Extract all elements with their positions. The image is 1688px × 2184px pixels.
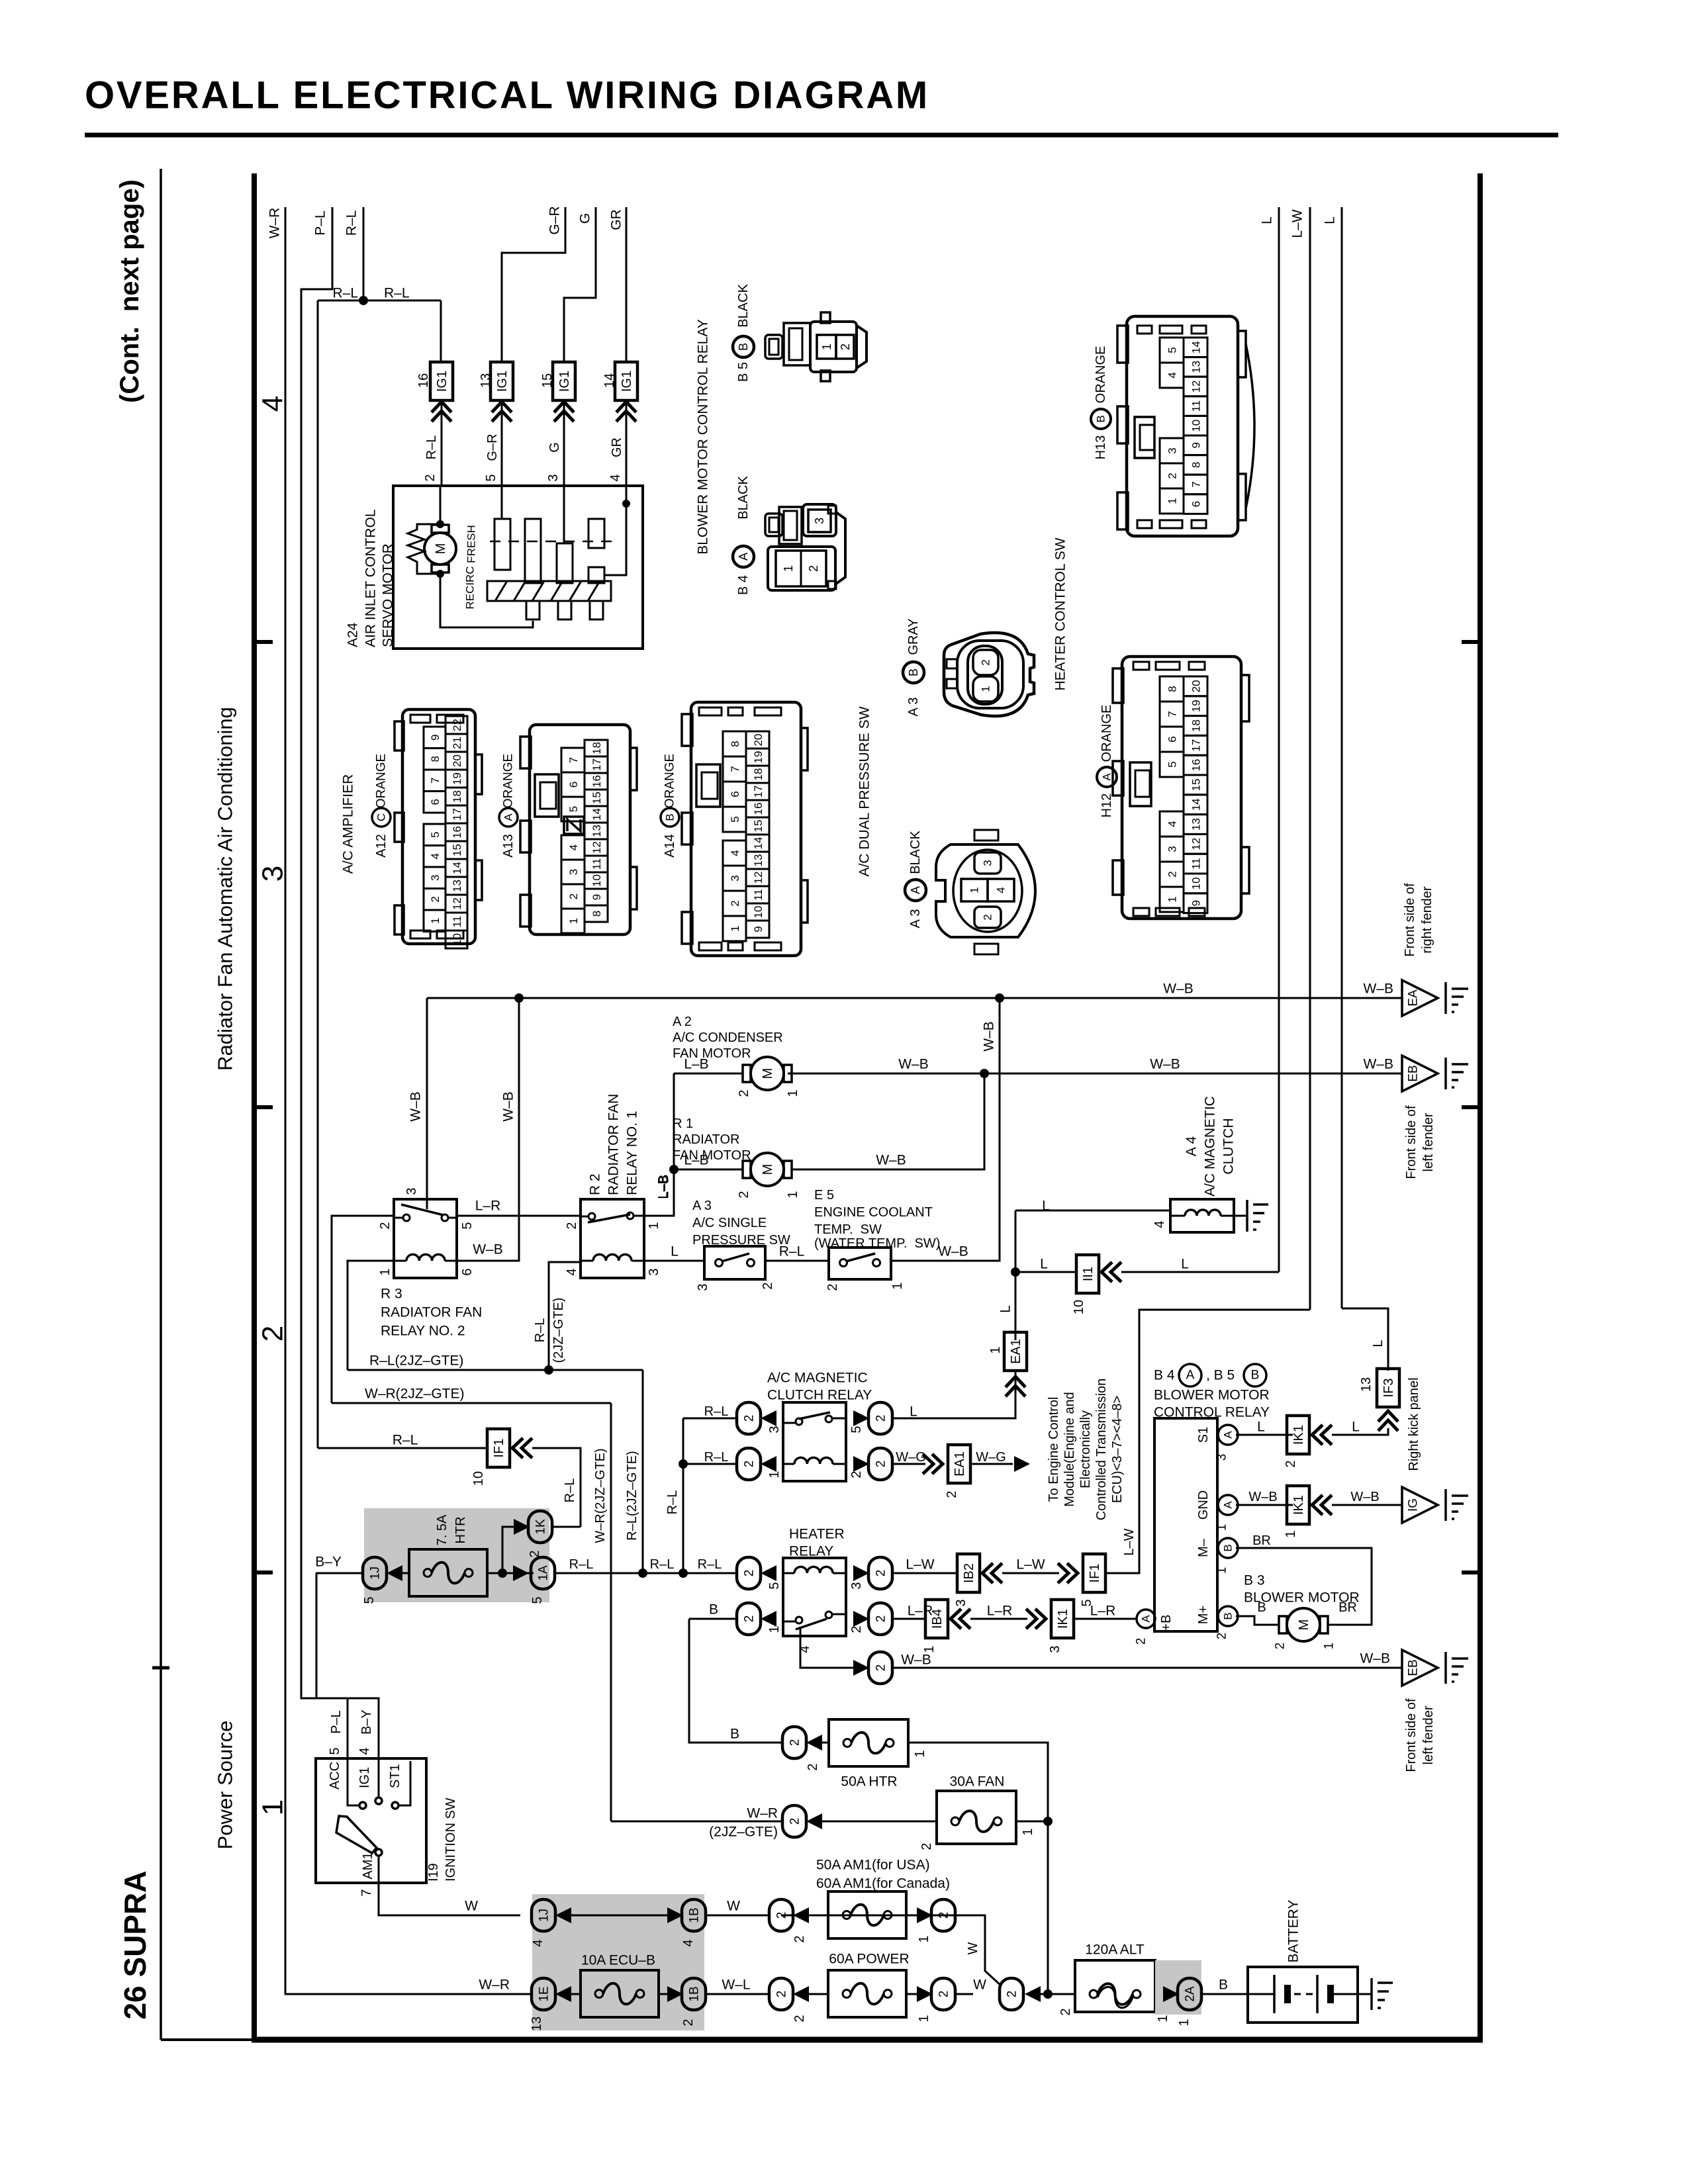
svg-text:RELAY NO. 1: RELAY NO. 1 [625, 1111, 640, 1195]
svg-text:M–: M– [1196, 1538, 1211, 1557]
svg-text:11: 11 [451, 916, 463, 928]
svg-text:A/C MAGNETIC: A/C MAGNETIC [767, 1371, 868, 1386]
svg-text:5: 5 [328, 1747, 342, 1754]
svg-text:1J: 1J [538, 1909, 551, 1922]
svg-text:12: 12 [590, 841, 603, 854]
svg-text:1E: 1E [538, 1986, 551, 2001]
svg-text:14: 14 [1190, 798, 1203, 811]
svg-text:W–B: W–B [1363, 981, 1393, 997]
svg-text:R–L(2JZ–GTE): R–L(2JZ–GTE) [369, 1353, 463, 1369]
svg-text:W: W [966, 1942, 980, 1954]
svg-text:2: 2 [874, 1415, 888, 1422]
svg-text:I19: I19 [426, 1863, 441, 1882]
svg-text:E 5: E 5 [814, 1188, 834, 1203]
svg-text:19: 19 [451, 772, 463, 785]
svg-text:A/C AMPLIFIER: A/C AMPLIFIER [341, 774, 356, 874]
svg-text:EA1: EA1 [1009, 1339, 1023, 1364]
svg-text:CLUTCH RELAY: CLUTCH RELAY [767, 1388, 872, 1403]
svg-text:2: 2 [945, 1490, 959, 1498]
svg-text:1: 1 [1215, 1567, 1229, 1574]
svg-text:ORANGE: ORANGE [663, 754, 677, 808]
svg-text:7: 7 [567, 757, 580, 763]
svg-text:3: 3 [954, 1599, 968, 1606]
svg-text:W–B: W–B [1360, 1651, 1390, 1666]
svg-text:2: 2 [429, 896, 442, 902]
svg-text:ACC: ACC [328, 1762, 342, 1790]
svg-text:50A HTR: 50A HTR [841, 1774, 897, 1790]
svg-text:W–B: W–B [473, 1242, 503, 1257]
svg-text:60A POWER: 60A POWER [829, 1952, 909, 1967]
svg-text:B–Y: B–Y [359, 1709, 374, 1735]
svg-text:2: 2 [792, 1935, 807, 1942]
svg-text:15: 15 [451, 844, 463, 856]
svg-text:IK1: IK1 [1291, 1495, 1306, 1515]
svg-text:18: 18 [1190, 719, 1203, 732]
svg-text:1K: 1K [534, 1519, 548, 1535]
svg-text:1: 1 [1177, 2019, 1192, 2026]
svg-text:1: 1 [782, 565, 795, 572]
svg-text:L: L [1371, 1340, 1385, 1347]
svg-text:A13: A13 [501, 834, 516, 858]
svg-text:Module(Engine and: Module(Engine and [1062, 1392, 1077, 1506]
svg-text:1: 1 [1323, 1643, 1336, 1650]
svg-text:16: 16 [416, 373, 431, 388]
svg-text:RELAY NO. 2: RELAY NO. 2 [381, 1324, 465, 1339]
svg-text:6: 6 [729, 791, 741, 797]
svg-text:BLOWER MOTOR CONTROL RELAY: BLOWER MOTOR CONTROL RELAY [696, 319, 711, 555]
svg-text:13: 13 [1359, 1377, 1374, 1392]
svg-text:7. 5A: 7. 5A [435, 1514, 449, 1545]
svg-text:10: 10 [451, 933, 463, 946]
svg-text:Front side of: Front side of [1404, 1698, 1419, 1772]
svg-text:W–B: W–B [1163, 981, 1194, 997]
svg-text:2: 2 [567, 893, 580, 899]
svg-text:4: 4 [1166, 372, 1179, 378]
svg-text:A12: A12 [374, 834, 389, 858]
svg-text:W–R: W–R [267, 208, 283, 239]
svg-text:2: 2 [849, 1625, 864, 1633]
svg-text:16: 16 [590, 775, 603, 788]
svg-text:12: 12 [752, 872, 765, 884]
svg-text:1: 1 [257, 1799, 289, 1815]
svg-text:A: A [909, 886, 922, 894]
svg-text:6: 6 [1166, 736, 1179, 742]
svg-text:L: L [1181, 1257, 1189, 1272]
svg-text:120A ALT: 120A ALT [1085, 1942, 1145, 1958]
svg-text:ST1: ST1 [388, 1764, 402, 1788]
svg-text:A: A [1222, 1431, 1235, 1439]
svg-text:1: 1 [917, 1935, 931, 1942]
svg-text:W–B: W–B [1363, 1057, 1393, 1072]
svg-text:GR: GR [609, 209, 624, 230]
svg-text:W–R(2JZ–GTE): W–R(2JZ–GTE) [593, 1448, 608, 1543]
svg-text:A: A [502, 813, 515, 821]
svg-text:IGNITION SW: IGNITION SW [444, 1797, 458, 1882]
svg-text:IG1: IG1 [435, 371, 449, 392]
svg-text:W–L: W–L [722, 1978, 750, 1993]
svg-text:M: M [1297, 1619, 1311, 1631]
svg-text:W–B: W–B [1248, 1490, 1277, 1504]
svg-text:1: 1 [786, 1089, 800, 1097]
svg-text:7: 7 [429, 778, 442, 784]
svg-text:2: 2 [775, 1991, 789, 1998]
svg-text:17: 17 [451, 808, 463, 821]
svg-text:R–L(2JZ–GTE): R–L(2JZ–GTE) [625, 1451, 639, 1541]
svg-text:2: 2 [743, 1615, 757, 1623]
svg-text:1A: 1A [537, 1565, 551, 1581]
svg-text:2: 2 [378, 1222, 393, 1229]
svg-text:AIR INLET CONTROL: AIR INLET CONTROL [363, 510, 379, 647]
svg-text:15: 15 [590, 792, 603, 804]
svg-text:W–B: W–B [982, 1021, 997, 1052]
svg-text:10: 10 [1190, 877, 1203, 889]
svg-text:3: 3 [546, 474, 561, 481]
svg-text:R–L: R–L [698, 1557, 722, 1572]
svg-text:B 4: B 4 [1154, 1368, 1175, 1383]
svg-text:1: 1 [988, 1346, 1003, 1353]
svg-text:right fender: right fender [1420, 886, 1434, 954]
svg-text:2: 2 [423, 474, 438, 481]
svg-text:W–G: W–G [896, 1450, 926, 1465]
svg-text:13: 13 [590, 825, 603, 837]
svg-text:2: 2 [849, 1471, 864, 1478]
svg-text:M: M [761, 1164, 775, 1175]
svg-text:BLOWER MOTOR: BLOWER MOTOR [1154, 1388, 1270, 1403]
svg-text:22: 22 [451, 719, 463, 731]
svg-text:R–L: R–L [533, 1318, 547, 1343]
svg-text:L: L [910, 1404, 917, 1420]
svg-text:13: 13 [451, 880, 463, 892]
svg-text:G–R: G–R [485, 433, 500, 461]
svg-text:2: 2 [937, 1912, 951, 1919]
svg-text:1J: 1J [369, 1567, 383, 1580]
svg-text:L–R: L–R [908, 1604, 933, 1619]
svg-text:4: 4 [608, 474, 623, 481]
svg-text:5: 5 [460, 1222, 475, 1229]
svg-text:4: 4 [257, 396, 289, 412]
svg-text:A: A [1140, 1615, 1152, 1623]
svg-text:L–R: L–R [987, 1604, 1013, 1619]
svg-text:5: 5 [729, 816, 741, 822]
svg-text:2: 2 [874, 1615, 888, 1623]
svg-text:2: 2 [788, 1739, 802, 1747]
svg-text:L–W: L–W [1122, 1528, 1137, 1555]
svg-text:13: 13 [752, 854, 765, 867]
svg-text:8: 8 [729, 741, 741, 747]
svg-text:C: C [375, 813, 388, 821]
svg-text:26 SUPRA: 26 SUPRA [118, 1871, 152, 2020]
svg-text:IB4: IB4 [930, 1609, 945, 1629]
svg-text:To Engine Control: To Engine Control [1047, 1397, 1061, 1502]
svg-text:20: 20 [1190, 680, 1203, 692]
svg-text:2: 2 [1284, 1460, 1298, 1467]
svg-text:W–B: W–B [501, 1091, 516, 1122]
svg-text:5: 5 [530, 1596, 545, 1604]
svg-text:W: W [465, 1899, 478, 1914]
svg-text:2: 2 [806, 1763, 820, 1770]
svg-text:L–B: L–B [684, 1057, 708, 1072]
svg-text:OVERALL ELECTRICAL WIRING DIAG: OVERALL ELECTRICAL WIRING DIAGRAM [85, 74, 929, 117]
svg-text:8: 8 [590, 911, 603, 917]
svg-text:3: 3 [1166, 447, 1179, 453]
svg-text:6: 6 [429, 799, 442, 805]
svg-text:5: 5 [567, 806, 580, 812]
svg-text:60A AM1(for Canada): 60A AM1(for Canada) [816, 1876, 950, 1891]
svg-text:P–L: P–L [313, 210, 328, 235]
svg-text:L: L [1323, 216, 1338, 224]
svg-text:1: 1 [767, 1625, 782, 1633]
svg-text:left fender: left fender [1421, 1113, 1436, 1171]
svg-text:2: 2 [1058, 2008, 1073, 2015]
svg-text:2: 2 [874, 1461, 888, 1468]
svg-text:R–L: R–L [384, 286, 410, 301]
svg-text:(2JZ–GTE): (2JZ–GTE) [709, 1825, 778, 1840]
svg-text:2: 2 [792, 2015, 807, 2022]
svg-text:ENGINE COOLANT: ENGINE COOLANT [814, 1205, 933, 1220]
svg-text:G: G [547, 442, 562, 453]
svg-text:2: 2 [761, 1282, 775, 1289]
svg-text:L: L [998, 1305, 1013, 1313]
svg-text:L–W: L–W [906, 1557, 934, 1572]
svg-text:Electronically: Electronically [1078, 1410, 1093, 1488]
svg-text:(Cont. next page): (Cont. next page) [115, 179, 144, 403]
svg-text:B: B [709, 1602, 718, 1617]
svg-text:ECU)<3–7><4–8>: ECU)<3–7><4–8> [1110, 1396, 1125, 1503]
svg-text:2: 2 [874, 1664, 888, 1672]
svg-text:IK1: IK1 [1291, 1425, 1306, 1445]
svg-text:A 3: A 3 [692, 1199, 712, 1213]
svg-text:FRESH: FRESH [465, 525, 478, 563]
svg-text:2: 2 [788, 1818, 802, 1825]
svg-text:1B: 1B [688, 1907, 702, 1923]
svg-text:3: 3 [813, 518, 826, 524]
svg-text:1: 1 [429, 918, 442, 924]
svg-text:R–L: R–L [393, 1433, 418, 1448]
svg-text:L: L [1040, 1257, 1048, 1272]
svg-text:2: 2 [839, 343, 852, 350]
svg-text:1: 1 [917, 2015, 931, 2022]
svg-text:1: 1 [820, 343, 833, 350]
svg-text:2: 2 [1135, 1638, 1149, 1645]
svg-text:IG: IG [1407, 1498, 1421, 1512]
svg-text:A 3: A 3 [906, 698, 921, 717]
svg-text:B: B [737, 343, 750, 351]
svg-text:W–R(2JZ–GTE): W–R(2JZ–GTE) [365, 1387, 465, 1402]
svg-text:A 2: A 2 [673, 1015, 692, 1029]
svg-text:10: 10 [471, 1471, 486, 1486]
svg-text:20: 20 [752, 734, 765, 747]
svg-text:8: 8 [429, 756, 442, 762]
svg-text:W–B: W–B [901, 1653, 931, 1668]
svg-text:18: 18 [451, 790, 463, 803]
svg-text:B: B [1219, 1978, 1228, 1993]
svg-text:3: 3 [982, 860, 994, 866]
svg-text:1B: 1B [688, 1986, 702, 2001]
svg-text:2: 2 [807, 565, 820, 572]
svg-text:5: 5 [484, 474, 498, 481]
svg-text:16: 16 [1190, 759, 1203, 772]
svg-text:2: 2 [1274, 1643, 1288, 1650]
svg-text:ORANGE: ORANGE [502, 754, 516, 808]
svg-text:BLACK: BLACK [736, 476, 751, 520]
svg-text:2: 2 [825, 1283, 840, 1291]
svg-text:4: 4 [567, 844, 580, 850]
svg-text:A: A [737, 553, 750, 561]
svg-text:7: 7 [1166, 711, 1179, 717]
svg-text:3: 3 [696, 1283, 710, 1291]
svg-text:13: 13 [1190, 818, 1203, 831]
svg-text:21: 21 [451, 737, 463, 749]
svg-text:R–L: R–L [332, 286, 358, 301]
svg-text:A14: A14 [663, 834, 677, 858]
svg-text:ORANGE: ORANGE [1100, 705, 1114, 762]
svg-text:W–B: W–B [938, 1244, 968, 1259]
svg-text:A/C MAGNETIC: A/C MAGNETIC [1203, 1096, 1218, 1197]
svg-text:11: 11 [752, 889, 765, 901]
svg-text:3: 3 [1215, 1454, 1229, 1461]
svg-text:ORANGE: ORANGE [1094, 346, 1108, 404]
svg-text:3: 3 [729, 875, 741, 881]
svg-text:4: 4 [531, 1939, 545, 1946]
svg-text:14: 14 [1190, 341, 1203, 353]
svg-text:, B 5: , B 5 [1206, 1368, 1235, 1383]
svg-text:R 2: R 2 [588, 1173, 603, 1195]
svg-text:9: 9 [752, 926, 765, 932]
svg-text:Front side of: Front side of [1404, 1105, 1419, 1179]
svg-text:2: 2 [919, 1843, 934, 1850]
svg-text:1: 1 [890, 1282, 905, 1289]
svg-text:IF1: IF1 [1088, 1564, 1102, 1583]
svg-text:L–R: L–R [1090, 1604, 1116, 1619]
svg-text:2: 2 [1215, 1633, 1229, 1640]
svg-text:14: 14 [451, 862, 463, 874]
svg-text:1: 1 [968, 887, 981, 893]
svg-text:GND: GND [1196, 1490, 1211, 1520]
svg-text:H12: H12 [1100, 794, 1114, 818]
svg-text:1: 1 [378, 1268, 393, 1275]
svg-text:4: 4 [681, 1939, 696, 1946]
svg-text:8: 8 [1166, 686, 1179, 692]
svg-text:W: W [973, 1978, 986, 1993]
svg-text:G–R: G–R [547, 206, 563, 234]
svg-text:1: 1 [1215, 1524, 1229, 1531]
svg-text:6: 6 [1190, 501, 1203, 507]
svg-text:7: 7 [359, 1889, 374, 1896]
svg-text:6: 6 [460, 1268, 475, 1275]
svg-text:6: 6 [567, 782, 580, 788]
svg-text:3: 3 [404, 1187, 419, 1195]
svg-text:A: A [1101, 773, 1113, 781]
svg-text:Front side of: Front side of [1403, 883, 1417, 957]
svg-text:3: 3 [849, 1582, 864, 1589]
svg-text:L: L [671, 1244, 679, 1259]
svg-text:3: 3 [647, 1268, 661, 1275]
svg-text:W–R: W–R [747, 1806, 778, 1821]
svg-text:13: 13 [1190, 361, 1203, 373]
svg-text:3: 3 [567, 869, 580, 875]
svg-text:HEATER: HEATER [789, 1527, 845, 1542]
svg-text:8: 8 [1190, 462, 1203, 468]
svg-text:1: 1 [922, 1645, 937, 1653]
svg-text:Power Source: Power Source [214, 1721, 237, 1850]
svg-text:7: 7 [729, 766, 741, 772]
svg-text:30A FAN: 30A FAN [950, 1774, 1005, 1790]
svg-text:A/C DUAL PRESSURE SW: A/C DUAL PRESSURE SW [857, 706, 872, 876]
svg-text:17: 17 [752, 786, 765, 798]
svg-text:W–B: W–B [898, 1057, 929, 1072]
svg-text:L–R: L–R [475, 1199, 501, 1214]
svg-text:A: A [1186, 1369, 1195, 1383]
svg-text:B: B [1222, 1612, 1235, 1619]
svg-text:BATTERY: BATTERY [1286, 1900, 1301, 1963]
svg-text:14: 14 [590, 808, 603, 821]
svg-text:11: 11 [1190, 858, 1203, 870]
svg-text:EB: EB [1407, 1659, 1421, 1676]
svg-text:B: B [907, 668, 920, 676]
svg-text:GRAY: GRAY [906, 618, 921, 655]
svg-text:L: L [1260, 216, 1275, 224]
svg-text:1: 1 [1156, 2015, 1170, 2022]
svg-text:2: 2 [737, 1089, 751, 1097]
svg-text:R–L: R–L [665, 1490, 680, 1515]
svg-text:ORANGE: ORANGE [375, 754, 389, 808]
svg-text:A: A [1222, 1501, 1235, 1509]
svg-text:4: 4 [357, 1747, 372, 1754]
svg-text:20: 20 [451, 754, 463, 767]
svg-text:11: 11 [590, 858, 603, 870]
svg-text:R–L: R–L [569, 1557, 594, 1572]
svg-text:2: 2 [681, 2019, 696, 2026]
svg-text:10: 10 [590, 874, 603, 887]
svg-text:left fender: left fender [1421, 1706, 1436, 1764]
svg-text:W–R: W–R [479, 1978, 510, 1993]
svg-text:17: 17 [590, 758, 603, 771]
svg-text:R 1: R 1 [673, 1116, 693, 1131]
svg-text:BLACK: BLACK [908, 831, 923, 874]
svg-text:4: 4 [1166, 821, 1179, 827]
svg-text:15: 15 [752, 820, 765, 833]
svg-text:M: M [434, 543, 448, 555]
svg-text:A 3: A 3 [908, 909, 923, 929]
svg-text:1: 1 [647, 1222, 661, 1229]
svg-text:A 4: A 4 [1184, 1136, 1199, 1157]
svg-text:RECIRC: RECIRC [464, 566, 477, 609]
svg-text:19: 19 [1190, 700, 1203, 712]
svg-text:W–B: W–B [1350, 1490, 1379, 1504]
svg-text:L: L [1352, 1420, 1360, 1435]
svg-text:B: B [1257, 1600, 1266, 1615]
svg-text:B: B [664, 813, 677, 821]
svg-text:3: 3 [429, 875, 442, 881]
svg-text:L–W: L–W [1290, 209, 1305, 238]
svg-text:3: 3 [1166, 846, 1179, 852]
svg-text:B: B [1222, 1544, 1235, 1551]
svg-text:5: 5 [849, 1426, 864, 1433]
svg-text:5: 5 [1166, 761, 1179, 767]
svg-text:10: 10 [1190, 420, 1203, 432]
svg-text:TEMP. SW: TEMP. SW [814, 1222, 882, 1237]
svg-text:H13: H13 [1094, 435, 1108, 460]
svg-text:IG1: IG1 [620, 371, 634, 392]
svg-text:L–W: L–W [1016, 1557, 1045, 1572]
svg-text:9: 9 [1190, 442, 1203, 448]
svg-text:12: 12 [451, 897, 463, 910]
svg-text:(2JZ–GTE): (2JZ–GTE) [551, 1298, 566, 1363]
svg-text:3: 3 [1048, 1645, 1062, 1653]
svg-text:1: 1 [1284, 1530, 1298, 1537]
svg-text:11: 11 [1190, 400, 1203, 412]
svg-text:IG1: IG1 [557, 371, 572, 392]
